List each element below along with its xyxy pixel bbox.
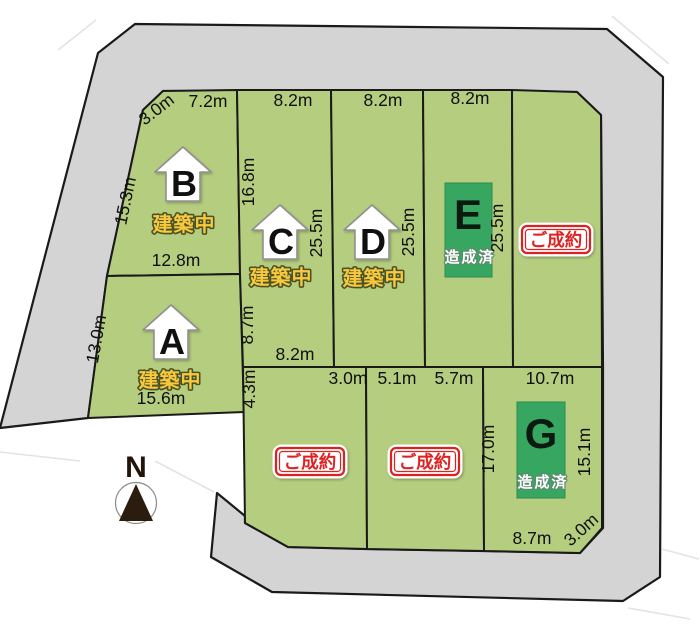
dim-c-left-lower: 8.7m: [237, 306, 257, 345]
plot-letter-d: D: [360, 221, 386, 262]
sold-badge-label-h: ご成約: [284, 452, 337, 472]
sold-badge-label-i: ご成約: [399, 452, 452, 472]
dim-h-left: 4.3m: [239, 370, 259, 409]
sold-badge-h: ご成約: [273, 445, 348, 479]
land-plot-map: B C D A 建築中 建築中 建築中 建築中 E 造成済 G 造成済 ご成約 …: [0, 0, 700, 626]
plot-letter-c: C: [268, 221, 294, 262]
dim-c-right: 25.5m: [306, 209, 326, 258]
dim-b-top: 7.2m: [189, 91, 228, 111]
dim-c-left-upper: 16.8m: [238, 158, 258, 207]
dim-a-bottom: 15.6m: [137, 388, 186, 408]
dim-d-top: 8.2m: [364, 90, 403, 110]
plot-letter-b: B: [171, 163, 197, 204]
dim-c-bottom: 8.2m: [276, 344, 315, 364]
plot-letter-e: E: [454, 191, 482, 238]
dim-d-right: 25.5m: [398, 208, 418, 257]
plot-letter-a: A: [159, 321, 185, 362]
dim-g-top: 10.7m: [526, 368, 575, 388]
dim-e-right: 25.5m: [487, 204, 507, 253]
dim-b-bottom: 12.8m: [152, 250, 201, 270]
status-under-construction-b: 建築中: [153, 212, 216, 236]
sold-badge-f: ご成約: [519, 223, 594, 257]
north-arrow: N: [116, 451, 157, 524]
site-map-svg: B C D A 建築中 建築中 建築中 建築中 E 造成済 G 造成済 ご成約 …: [0, 0, 700, 626]
dim-e-top: 8.2m: [451, 88, 490, 108]
status-under-construction-d: 建築中: [343, 266, 406, 290]
dim-g-bottom: 8.7m: [513, 528, 552, 548]
dim-h-top-right: 3.0m: [329, 368, 368, 388]
plot-letter-g: G: [525, 410, 558, 457]
developed-label-g: 造成済: [517, 473, 568, 491]
dim-g-right: 15.1m: [574, 428, 594, 477]
dim-c-top: 8.2m: [274, 90, 313, 110]
sold-badge-i: ご成約: [388, 445, 463, 479]
dim-g-left: 17.0m: [478, 425, 498, 474]
dim-i-top-left: 5.1m: [378, 368, 417, 388]
sold-badge-label-f: ご成約: [530, 230, 583, 250]
dim-i-top-right: 5.7m: [435, 368, 474, 388]
north-label: N: [125, 451, 147, 484]
status-under-construction-c: 建築中: [250, 265, 313, 289]
